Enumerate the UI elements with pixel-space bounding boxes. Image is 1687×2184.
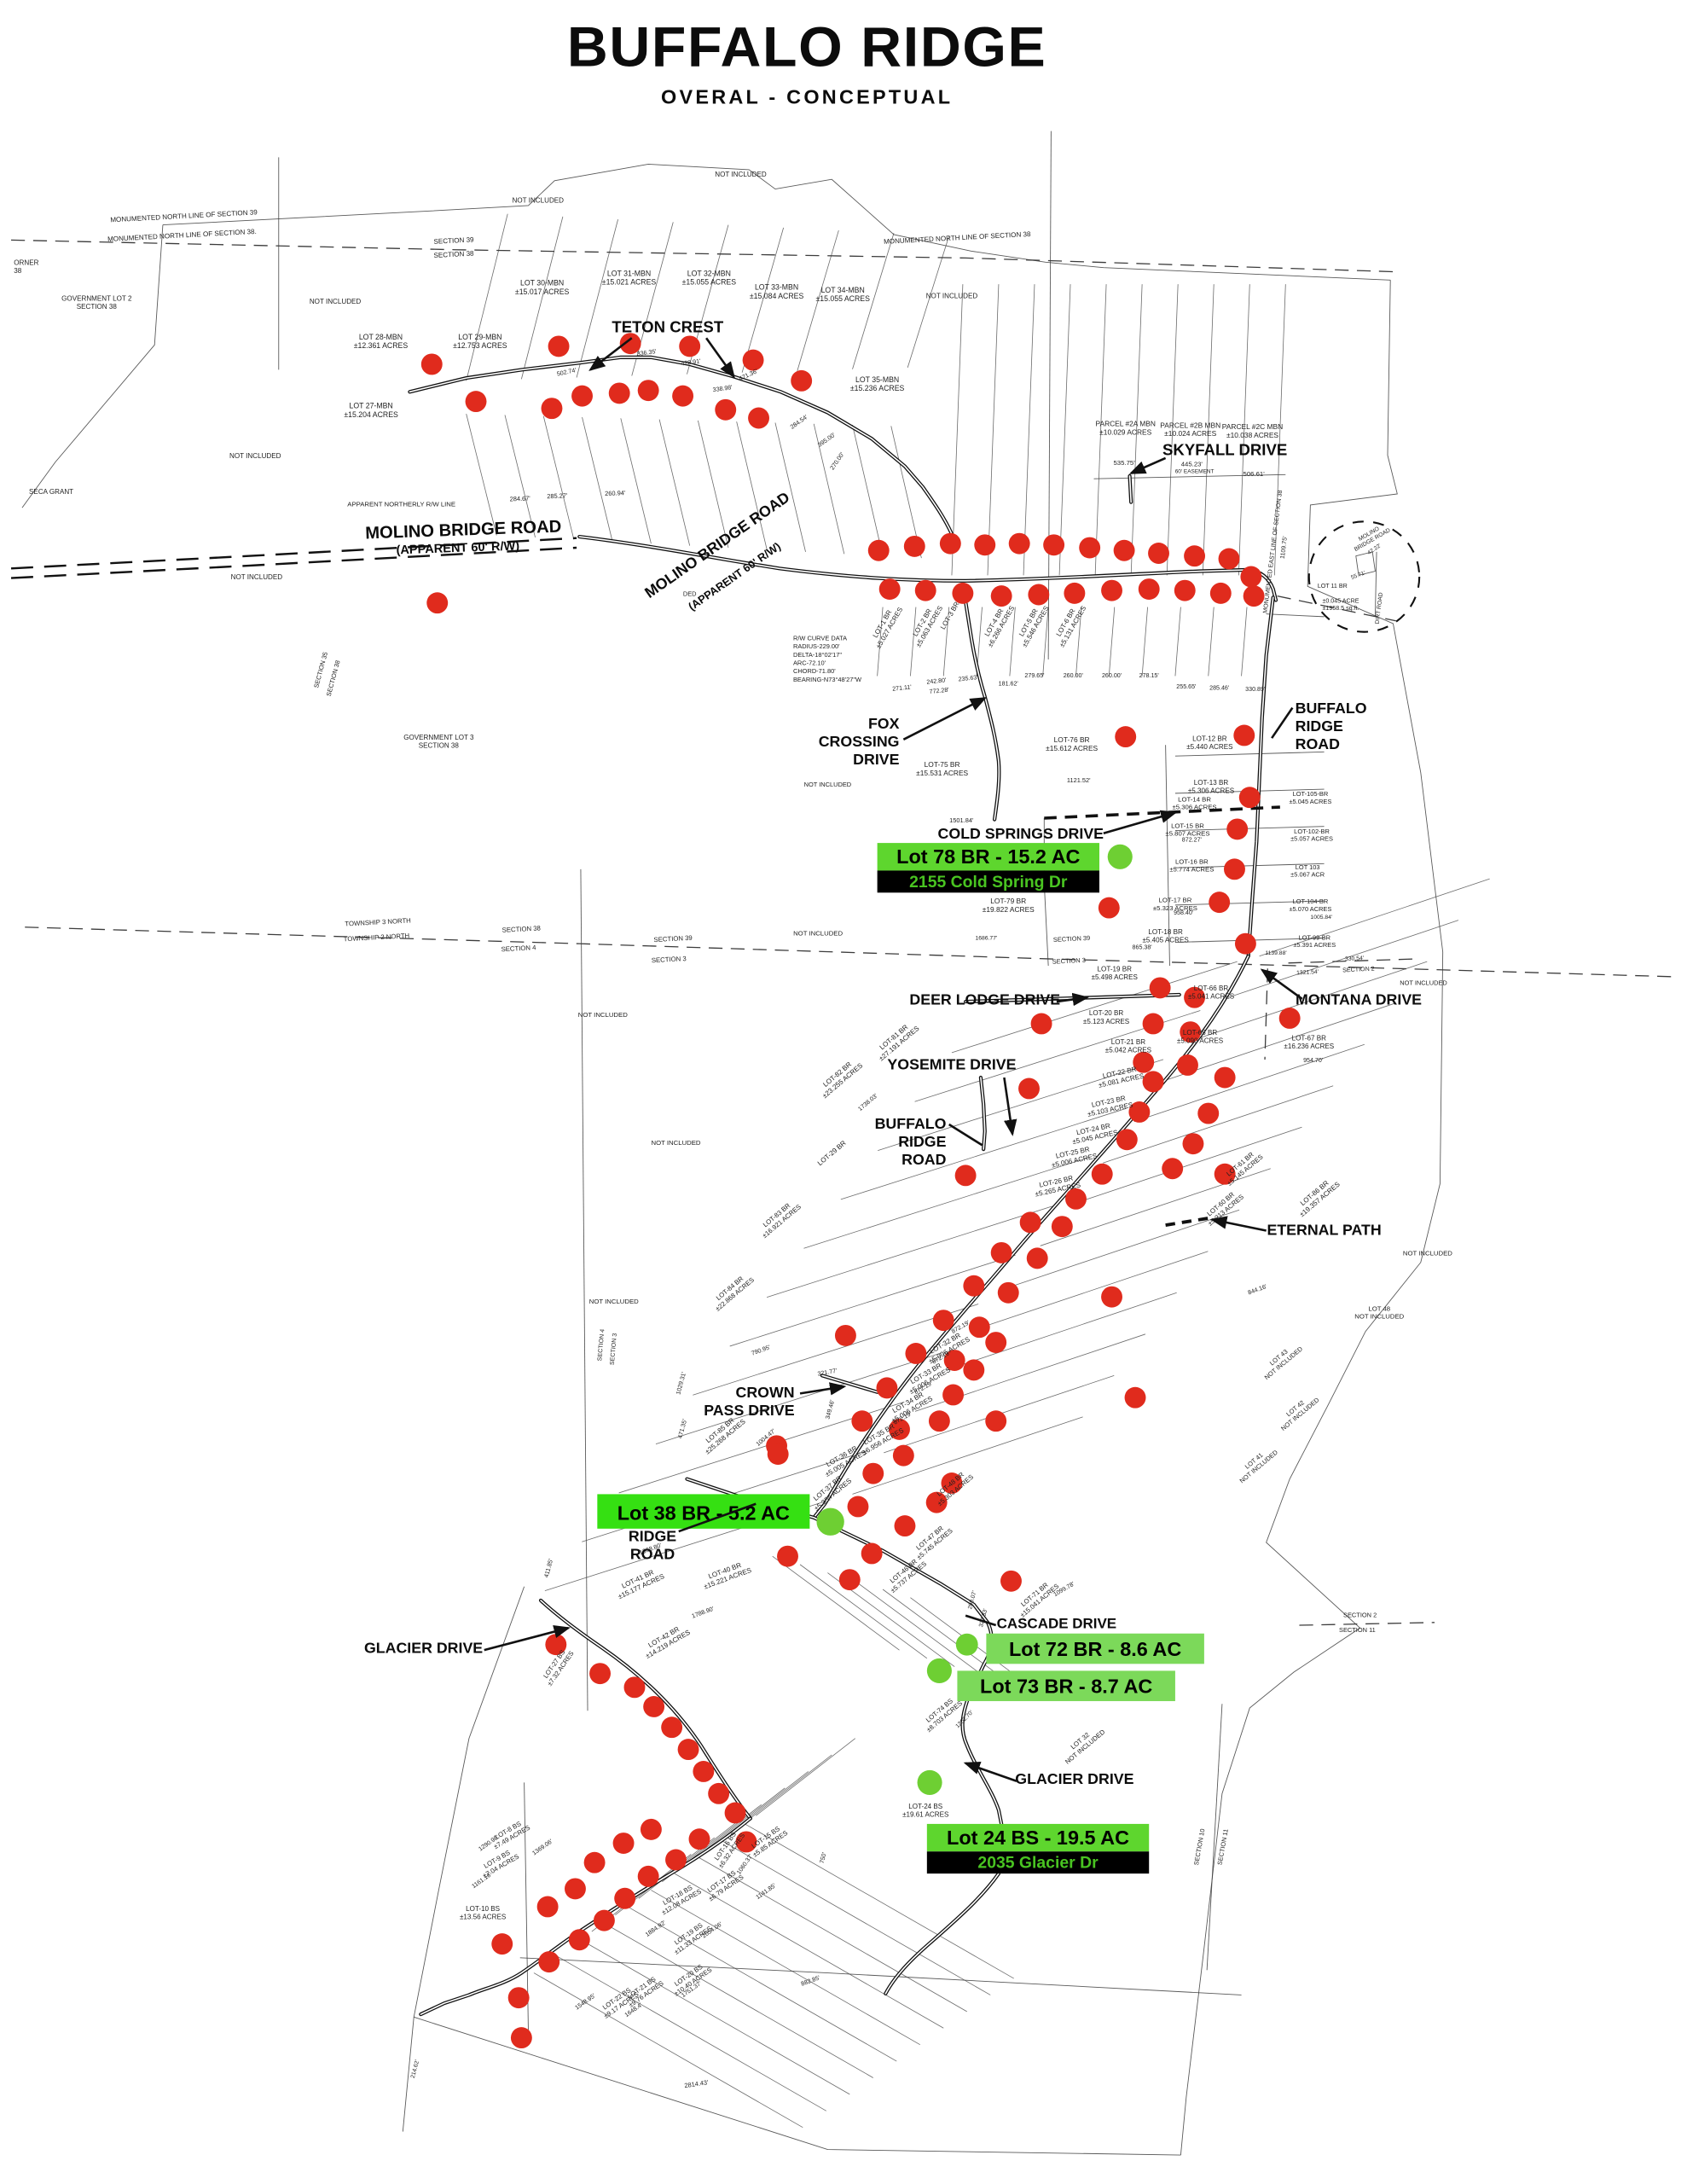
lot-highlight-label: Lot 78 BR - 15.2 AC (896, 845, 1080, 868)
red-lot-dot[interactable] (862, 1463, 884, 1484)
parcel-label: 284.67' (509, 495, 530, 503)
parcel-label: 506.61' (1244, 470, 1266, 478)
parcel-label: LOT-105-BR±5.045 ACRES (1289, 790, 1331, 805)
road-label: YOSEMITE DRIVE (887, 1055, 1016, 1072)
red-lot-dot[interactable] (1018, 1078, 1040, 1100)
parcel-label: 330.89' (1245, 686, 1265, 693)
red-lot-dot[interactable] (768, 1443, 789, 1465)
red-lot-dot[interactable] (1240, 566, 1261, 588)
parcel-label: ARC-72.10' (793, 659, 826, 666)
red-lot-dot[interactable] (791, 370, 812, 392)
parcel-label: ±0.045 ACRE±1958.5 sq.ft. (1322, 598, 1359, 612)
red-lot-dot[interactable] (1235, 933, 1256, 955)
red-lot-dot[interactable] (839, 1569, 861, 1590)
red-lot-dot[interactable] (491, 1933, 513, 1955)
red-lot-dot[interactable] (1150, 977, 1171, 998)
parcel-label: NOT INCLUDED (793, 929, 843, 937)
red-lot-dot[interactable] (1125, 1387, 1146, 1409)
red-lot-dot[interactable] (1279, 1008, 1301, 1029)
red-lot-dot[interactable] (851, 1410, 872, 1432)
red-lot-dot[interactable] (1209, 892, 1230, 913)
road-label: CASCADE DRIVE (997, 1615, 1116, 1631)
parcel-label: 278.15' (1139, 672, 1159, 679)
road-label: SKYFALL DRIVE (1162, 441, 1287, 459)
parcel-label: LOT 33-MBN±15.084 ACRES (750, 283, 804, 300)
red-lot-dot[interactable] (969, 1316, 990, 1338)
lot-address-label: 2155 Cold Spring Dr (909, 873, 1068, 892)
road-label: GLACIER DRIVE (1015, 1770, 1133, 1787)
parcel-label: LOT-99-BR±5.391 ACRES (1293, 933, 1336, 949)
red-lot-dot[interactable] (963, 1275, 984, 1297)
red-lot-dot[interactable] (565, 1878, 586, 1899)
parcel-label: LOT-21 BR±5.042 ACRES (1105, 1038, 1152, 1054)
red-lot-dot[interactable] (1115, 726, 1136, 747)
red-lot-dot[interactable] (848, 1496, 869, 1518)
parcel-label: 279.65' (1024, 672, 1044, 679)
parcel-label: LOT-16 BR±5.774 ACRES (1169, 857, 1214, 873)
parcel-label: 1501.84' (949, 816, 974, 824)
parcel-label: 285.46' (1209, 685, 1229, 692)
red-lot-dot[interactable] (985, 1332, 1006, 1353)
red-lot-dot[interactable] (537, 1896, 559, 1917)
red-lot-dot[interactable] (904, 536, 925, 557)
red-lot-dot[interactable] (861, 1542, 883, 1564)
parcel-label: PARCEL #2C MBN±10.038 ACRES (1222, 422, 1283, 439)
parcel-label: LOT-10 BS±13.56 ACRES (460, 1905, 507, 1921)
green-lot-dot[interactable] (1108, 845, 1133, 869)
parcel-label: NOT INCLUDED (715, 171, 767, 178)
map-background (0, 0, 1687, 2184)
parcel-label: 954.70' (1303, 1057, 1323, 1064)
red-lot-dot[interactable] (542, 398, 563, 419)
parcel-label: 535.75' (1114, 459, 1136, 467)
red-lot-dot[interactable] (929, 1410, 950, 1432)
red-lot-dot[interactable] (1143, 1071, 1164, 1092)
red-lot-dot[interactable] (1197, 1103, 1219, 1124)
parcel-label: SECA GRANT (29, 488, 73, 496)
road-label: ETERNAL PATH (1267, 1221, 1381, 1238)
parcel-label: 330.54' (1345, 955, 1364, 962)
parcel-label: NOT INCLUDED (513, 197, 565, 205)
parcel-label: NOT INCLUDED (578, 1011, 628, 1019)
parcel-label: LOT-66 BR±5.041 ACRES (1188, 985, 1235, 1001)
parcel-label: 1121.52' (1067, 776, 1091, 784)
lot-highlight-label: Lot 38 BR - 5.2 AC (617, 1501, 790, 1524)
parcel-label: 1321.54' (1296, 969, 1319, 976)
red-lot-dot[interactable] (893, 1445, 914, 1467)
red-lot-dot[interactable] (609, 382, 630, 404)
parcel-label: BEARING-N73°48'27"W (793, 676, 861, 683)
parcel-label: 445.23' (1181, 461, 1203, 468)
parcel-label: LOT-15 BR±5.807 ACRES (1165, 822, 1209, 837)
parcel-label: 958.40' (1174, 909, 1193, 916)
red-lot-dot[interactable] (665, 1850, 687, 1871)
parcel-label: LOT 34-MBN±15.055 ACRES (815, 286, 870, 303)
red-lot-dot[interactable] (868, 540, 890, 561)
red-lot-dot[interactable] (643, 1696, 664, 1717)
red-lot-dot[interactable] (1184, 545, 1205, 566)
parcel-label: R/W CURVE DATA (793, 634, 847, 642)
red-lot-dot[interactable] (876, 1377, 897, 1398)
red-lot-dot[interactable] (725, 1803, 746, 1824)
lot-address-label: 2035 Glacier Dr (977, 1854, 1099, 1873)
parcel-label: NOT INCLUDED (229, 452, 281, 460)
parcel-label: CHORD-71.80' (793, 667, 836, 675)
red-lot-dot[interactable] (1244, 585, 1265, 607)
parcel-label: LOT-19 BR±5.498 ACRES (1092, 965, 1139, 981)
red-lot-dot[interactable] (985, 1410, 1006, 1432)
red-lot-dot[interactable] (538, 1951, 559, 1972)
parcel-label: NOT INCLUDED (231, 573, 283, 581)
red-lot-dot[interactable] (1009, 533, 1030, 555)
parcel-label: LOT 11 BR (1318, 583, 1348, 590)
red-lot-dot[interactable] (571, 386, 593, 407)
red-lot-dot[interactable] (614, 1888, 635, 1909)
red-lot-dot[interactable] (1099, 897, 1120, 919)
red-lot-dot[interactable] (991, 1242, 1012, 1263)
red-lot-dot[interactable] (1101, 580, 1122, 601)
red-lot-dot[interactable] (1148, 543, 1169, 564)
parcel-label: LOT-20 BR±5.123 ACRES (1083, 1009, 1130, 1025)
red-lot-dot[interactable] (624, 1676, 646, 1698)
parcel-label: 865.38' (1133, 944, 1152, 951)
red-lot-dot[interactable] (1114, 540, 1135, 561)
red-lot-dot[interactable] (915, 580, 936, 601)
road-label: TETON CREST (612, 318, 723, 336)
red-lot-dot[interactable] (963, 1359, 984, 1380)
lot-highlight-label: Lot 73 BR - 8.7 AC (980, 1676, 1152, 1698)
red-lot-dot[interactable] (777, 1546, 798, 1567)
red-lot-dot[interactable] (1177, 1054, 1198, 1076)
red-lot-dot[interactable] (998, 1282, 1019, 1304)
red-lot-dot[interactable] (1174, 580, 1196, 601)
lot-highlight-label: Lot 72 BR - 8.6 AC (1009, 1638, 1181, 1660)
parcel-label: 260.94' (605, 489, 626, 497)
road-label: GLACIER DRIVE (364, 1639, 483, 1656)
red-lot-dot[interactable] (1065, 1188, 1087, 1210)
red-lot-dot[interactable] (584, 1852, 606, 1873)
road-label: MONTANA DRIVE (1296, 990, 1422, 1008)
red-lot-dot[interactable] (594, 1910, 615, 1931)
parcel-label: RADIUS-229.00' (793, 642, 840, 650)
red-lot-dot[interactable] (511, 2027, 532, 2048)
red-lot-dot[interactable] (672, 386, 693, 407)
parcel-label: 255.65' (1176, 683, 1196, 690)
red-lot-dot[interactable] (1064, 583, 1085, 604)
red-lot-dot[interactable] (895, 1515, 916, 1536)
red-lot-dot[interactable] (715, 399, 736, 421)
red-lot-dot[interactable] (1092, 1164, 1113, 1185)
red-lot-dot[interactable] (1139, 578, 1160, 600)
red-lot-dot[interactable] (1052, 1216, 1073, 1237)
road-label: DEER LODGE DRIVE (909, 990, 1060, 1008)
red-lot-dot[interactable] (879, 578, 901, 600)
red-lot-dot[interactable] (693, 1761, 714, 1782)
parcel-label: 872.27' (1182, 836, 1202, 843)
parcel-label: LOT 31-MBN±15.021 ACRES (602, 269, 657, 286)
page-title: BUFFALO RIDGE (567, 16, 1046, 79)
red-lot-dot[interactable] (1028, 584, 1049, 606)
road-label: COLD SPRINGS DRIVE (938, 825, 1104, 842)
red-lot-dot[interactable] (1233, 725, 1255, 746)
parcel-label: NOT INCLUDED (926, 292, 978, 299)
parcel-label: APPARENT NORTHERLY R/W LINE (347, 501, 455, 508)
red-lot-dot[interactable] (661, 1716, 682, 1738)
red-lot-dot[interactable] (940, 533, 961, 555)
red-lot-dot[interactable] (748, 408, 769, 429)
parcel-label: LOT-13 BR±5.306 ACRES (1188, 779, 1235, 795)
red-lot-dot[interactable] (426, 592, 448, 613)
red-lot-dot[interactable] (466, 391, 487, 412)
parcel-label: 260.00' (1064, 672, 1083, 679)
parcel-label: LOT-104-BR±5.070 ACRES (1289, 897, 1331, 913)
red-lot-dot[interactable] (508, 1987, 530, 2008)
parcel-label: LOT 32-MBN±15.055 ACRES (682, 269, 737, 286)
parcel-label: LOT-14 BR±5.306 ACRES (1173, 796, 1217, 811)
parcel-label: NOT INCLUDED (310, 298, 362, 305)
road-label: RIDGEROAD (629, 1527, 676, 1562)
red-lot-dot[interactable] (1000, 1571, 1022, 1592)
red-lot-dot[interactable] (421, 353, 443, 375)
parcel-label: 1005.84' (1310, 915, 1332, 921)
lot-highlight[interactable]: Lot 78 BR - 15.2 AC2155 Cold Spring Dr (878, 843, 1099, 892)
parcel-label: NOT INCLUDED (652, 1139, 701, 1147)
parcel-label: LOT 30-MBN±15.017 ACRES (515, 279, 570, 296)
parcel-label: LOT 29-MBN±12.753 ACRES (453, 333, 507, 350)
red-lot-dot[interactable] (1183, 1133, 1204, 1154)
red-lot-dot[interactable] (708, 1783, 729, 1804)
plat-map: BUFFALO RIDGE OVERAL - CONCEPTUAL MONUME… (0, 0, 1687, 2184)
parcel-label: PARCEL #2A MBN±10.029 ACRES (1096, 420, 1156, 437)
red-lot-dot[interactable] (678, 1739, 699, 1760)
parcel-label: 60' EASEMENT (1175, 469, 1215, 475)
parcel-label: NOT INCLUDED (589, 1298, 639, 1305)
red-lot-dot[interactable] (942, 1385, 964, 1406)
parcel-label: DELTA-18°02'17" (793, 651, 842, 659)
green-lot-dot[interactable] (918, 1770, 942, 1795)
parcel-label: LOT 28-MBN±12.361 ACRES (354, 333, 409, 350)
red-lot-dot[interactable] (1031, 1013, 1052, 1034)
red-lot-dot[interactable] (955, 1165, 977, 1186)
parcel-label: LOT-24 BS±19.61 ACRES (902, 1803, 949, 1819)
plat-page: BUFFALO RIDGE OVERAL - CONCEPTUAL MONUME… (0, 0, 1687, 2184)
parcel-label: LOT-65 BR±5.090 ACRES (1177, 1029, 1224, 1045)
red-lot-dot[interactable] (1162, 1158, 1183, 1179)
red-lot-dot[interactable] (1143, 1013, 1164, 1034)
red-lot-dot[interactable] (1215, 1067, 1236, 1089)
parcel-label: 1139.88' (1265, 950, 1286, 956)
red-lot-dot[interactable] (1079, 537, 1100, 559)
red-lot-dot[interactable] (638, 380, 659, 401)
red-lot-dot[interactable] (1239, 787, 1261, 808)
parcel-label: LOT-18 BR±5.405 ACRES (1142, 928, 1189, 944)
lot-highlight[interactable]: Lot 24 BS - 19.5 AC2035 Glacier Dr (927, 1824, 1149, 1873)
parcel-label: PARCEL #2B MBN±10.024 ACRES (1160, 421, 1220, 438)
red-lot-dot[interactable] (638, 1866, 659, 1887)
lot-highlight-label: Lot 24 BS - 19.5 AC (947, 1827, 1129, 1849)
red-lot-dot[interactable] (589, 1663, 611, 1684)
parcel-label: LOT-102-BR±5.057 ACRES (1290, 828, 1333, 843)
red-lot-dot[interactable] (1219, 549, 1240, 570)
green-lot-dot[interactable] (927, 1658, 952, 1683)
page-subtitle: OVERAL - CONCEPTUAL (661, 85, 953, 107)
lot-highlight[interactable]: Lot 72 BR - 8.6 AC (986, 1634, 1204, 1664)
parcel-label: 260.00' (1102, 672, 1122, 679)
red-lot-dot[interactable] (1224, 858, 1245, 880)
red-lot-dot[interactable] (835, 1325, 856, 1346)
red-lot-dot[interactable] (743, 350, 764, 371)
parcel-label: 1686.77' (975, 935, 997, 941)
red-lot-dot[interactable] (974, 534, 995, 555)
parcel-label: LOT 27-MBN±15.204 ACRES (344, 402, 398, 419)
red-lot-dot[interactable] (1020, 1211, 1041, 1233)
red-lot-dot[interactable] (679, 335, 700, 357)
green-lot-dot[interactable] (956, 1634, 978, 1656)
parcel-label: LOT-12 BR±5.440 ACRES (1186, 735, 1233, 751)
red-lot-dot[interactable] (641, 1819, 662, 1840)
red-lot-dot[interactable] (689, 1828, 710, 1850)
red-lot-dot[interactable] (905, 1343, 926, 1364)
red-lot-dot[interactable] (1027, 1247, 1048, 1269)
red-lot-dot[interactable] (1226, 818, 1248, 839)
red-lot-dot[interactable] (1101, 1287, 1122, 1308)
red-lot-dot[interactable] (548, 335, 570, 357)
green-lot-dot[interactable] (816, 1508, 843, 1536)
parcel-label: SECTION 11 (1339, 1626, 1376, 1634)
parcel-label: NOT INCLUDED (1400, 979, 1447, 987)
lot-highlight[interactable]: Lot 73 BR - 8.7 AC (957, 1670, 1175, 1701)
parcel-label: SECTION 2 (1343, 1611, 1377, 1618)
parcel-label: 285.27' (547, 491, 568, 500)
red-lot-dot[interactable] (1043, 534, 1064, 555)
red-lot-dot[interactable] (991, 585, 1012, 607)
red-lot-dot[interactable] (613, 1833, 635, 1854)
parcel-label: NOT INCLUDED (1403, 1250, 1452, 1258)
parcel-label: LOT 35-MBN±15.236 ACRES (850, 375, 905, 392)
red-lot-dot[interactable] (1116, 1129, 1138, 1150)
red-lot-dot[interactable] (569, 1929, 590, 1950)
parcel-label: NOT INCLUDED (804, 781, 852, 788)
parcel-label: 181.62' (999, 681, 1018, 688)
red-lot-dot[interactable] (1210, 583, 1232, 604)
